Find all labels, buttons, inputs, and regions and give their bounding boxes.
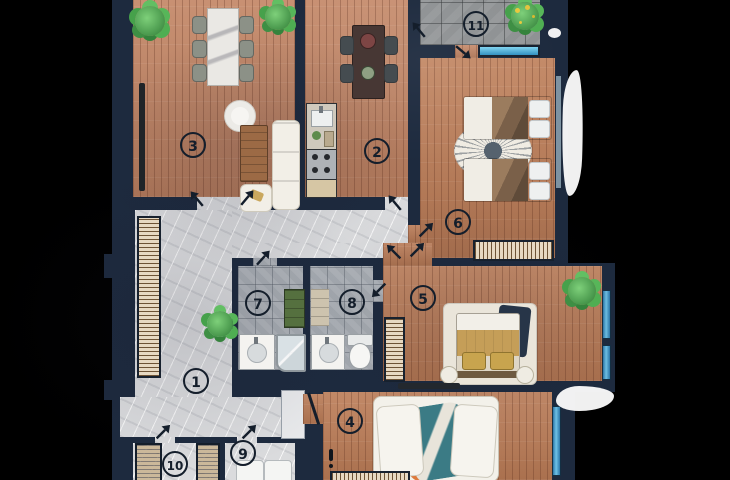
curtain-fold [548,28,561,38]
radiator [137,216,161,378]
room-6-window [556,76,561,188]
pillow [490,352,514,370]
burner-icon [324,154,330,160]
toilet-bowl [349,343,371,369]
stove [306,149,337,181]
door-stop-marker [329,464,333,468]
nightstand [440,366,458,384]
twin-bed [463,158,552,202]
chair [192,40,207,58]
washing-machine [264,460,292,480]
double-bed [456,313,520,375]
chair [192,64,207,82]
twin-bed [463,96,552,140]
nightstand [516,366,534,384]
wall-nub-left-lower [104,380,112,400]
room-3-number-badge: 3 [180,132,206,158]
room-1-number-badge: 1 [183,368,209,394]
headboard [398,383,460,389]
sink-basin [319,343,339,363]
cutting-board [324,131,334,147]
wall-nub-left-upper [104,254,112,278]
door-stop-marker [329,449,333,461]
room-11-number-badge: 11 [463,11,489,37]
chair [384,36,398,55]
room-9-number-badge: 9 [230,440,256,466]
bathroom-shelf [311,289,329,326]
hall-closet [281,390,305,439]
toilet [347,334,371,368]
pillow [376,404,425,479]
kitchen-drawer [306,179,337,198]
bed-sheet [457,314,519,330]
pillow [450,404,499,479]
faucet-icon [325,337,329,344]
burner-icon [324,167,330,173]
bed-sheet [464,97,492,139]
shower [276,334,306,372]
dining-table-marble [207,8,239,86]
burner-icon [312,167,318,173]
room-4-number-badge: 4 [337,408,363,434]
pillow [529,120,550,138]
pillow [529,162,550,180]
radiator [330,471,410,480]
headboard [452,371,522,378]
room-10-number-badge: 10 [162,451,188,477]
faucet-icon [254,337,258,344]
faucet-icon [319,106,323,113]
room-6-number-badge: 6 [445,209,471,235]
room-5-window-upper [602,290,611,339]
room-5-number-badge: 5 [410,285,436,311]
plate [360,33,376,49]
radiator [384,317,405,382]
floor-plan-image: 1 2 3 4 5 6 7 8 9 10 11 [0,0,730,480]
balcony-plant-icon [511,2,539,30]
sink-basin [247,343,267,363]
chair [340,64,354,83]
room-8-number-badge: 8 [339,289,365,315]
wardrobe [135,443,162,480]
double-bed [373,396,499,480]
pillow [462,352,486,370]
pillow [529,100,550,118]
herb-pot [312,131,321,140]
sofa [272,120,300,210]
chair [239,64,254,82]
plant-icon [135,6,165,36]
tv-console [240,125,268,182]
room-7-number-badge: 7 [245,290,271,316]
wardrobe [196,443,220,480]
bed-sheet [464,159,492,201]
balcony-window-bench [478,45,540,57]
room-2-number-badge: 2 [364,138,390,164]
plate [361,66,375,80]
radiator [473,240,554,261]
chair [340,36,354,55]
plant-icon [265,4,291,30]
chair [192,16,207,34]
plant-icon [207,311,233,337]
room-4-curtain [556,386,614,411]
bed-blanket [492,97,528,139]
bed-blanket [492,159,528,201]
bathroom-cabinet [284,289,305,328]
room-5-window-lower [602,345,611,380]
chair [239,16,254,34]
tv-unit [139,83,145,191]
chair [239,40,254,58]
burner-icon [312,154,318,160]
vanity-sink [311,334,345,370]
pillow [529,182,550,200]
vanity-sink [239,334,275,370]
kitchen-sink-counter [306,103,337,151]
plant-icon [568,277,596,305]
chair [384,64,398,83]
room-4-window [552,406,561,476]
